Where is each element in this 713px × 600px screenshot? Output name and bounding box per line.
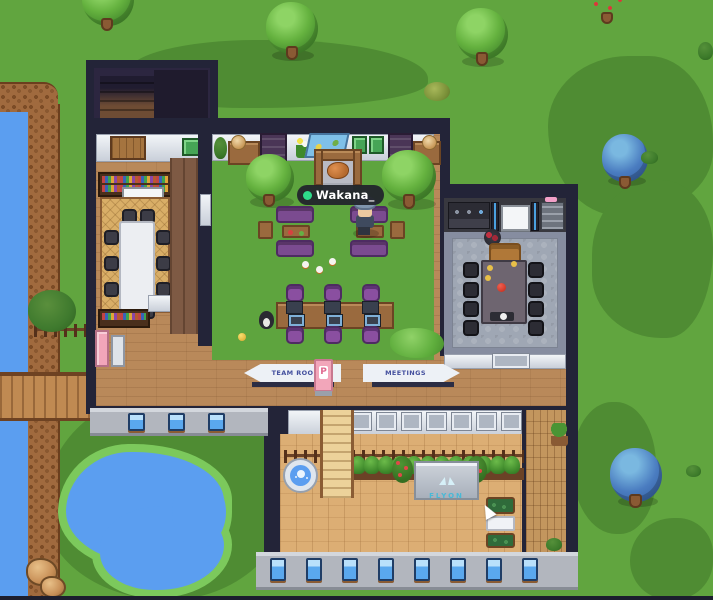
chair-black — [528, 262, 544, 278]
pond — [172, 476, 226, 548]
game-viewport[interactable]: TEAM ROOMS MEETINGS P FLYON — [0, 0, 713, 600]
sofa — [276, 240, 314, 257]
tree-trunk — [629, 494, 642, 508]
window — [414, 558, 430, 581]
brand-billboard: FLYON — [414, 461, 479, 500]
chicken — [302, 261, 309, 268]
chair — [104, 230, 119, 245]
speaker-tower — [531, 202, 539, 231]
office-chair — [324, 326, 342, 344]
chicken — [329, 258, 336, 265]
billboard-wing-icon — [416, 470, 477, 489]
window — [427, 413, 446, 430]
patio-stairs[interactable] — [320, 410, 354, 498]
player-name: Wakana_ — [316, 188, 375, 202]
wall-window — [200, 194, 211, 226]
fountain — [283, 458, 318, 493]
chair-black — [463, 282, 479, 298]
tree-trunk — [403, 194, 415, 209]
sign-meetings[interactable]: MEETINGS — [363, 364, 460, 382]
window — [477, 413, 496, 430]
window — [486, 558, 502, 581]
window — [208, 413, 225, 431]
whiteboard[interactable] — [501, 205, 530, 231]
bush — [686, 465, 701, 477]
monitor — [324, 301, 341, 314]
tree-trunk — [286, 46, 298, 60]
monitor — [286, 301, 303, 314]
vending-machine-silver[interactable] — [111, 335, 125, 367]
viewport-edge — [0, 596, 713, 600]
dark-grass-patch — [592, 180, 713, 338]
chair-black — [528, 320, 544, 336]
potted-plant — [214, 137, 227, 159]
gold-item — [487, 265, 493, 271]
status-dot-icon — [303, 191, 312, 200]
bush — [390, 328, 444, 358]
sofa — [276, 206, 314, 223]
chair-black — [528, 282, 544, 298]
window — [128, 413, 145, 431]
window — [378, 558, 394, 581]
chair-black — [463, 301, 479, 317]
tree-trunk — [601, 12, 613, 24]
bush — [641, 151, 658, 164]
chair — [156, 256, 171, 271]
fountain-spray — [297, 470, 305, 478]
chair — [156, 230, 171, 245]
side-bench — [258, 221, 273, 239]
garden-bench — [486, 533, 515, 548]
gold-item — [511, 261, 517, 267]
monitor — [362, 301, 379, 314]
avatar-leg — [364, 227, 370, 235]
office-chair — [286, 284, 304, 302]
office-chair — [286, 326, 304, 344]
window — [502, 413, 521, 430]
window — [352, 413, 371, 430]
pink-portal-poster[interactable]: P — [314, 359, 333, 392]
reception-desk-side — [314, 149, 323, 186]
divider-wall — [198, 118, 212, 346]
tree-trunk — [263, 194, 275, 207]
gold-item — [238, 333, 246, 341]
dark-grass-patch — [630, 518, 713, 600]
window — [306, 558, 322, 581]
vending-machine-pink[interactable] — [95, 330, 109, 367]
bush — [546, 538, 562, 551]
door[interactable] — [110, 136, 146, 160]
river — [0, 106, 30, 600]
chicken — [316, 266, 323, 273]
cobble-path — [28, 104, 60, 600]
window — [493, 354, 529, 368]
chair — [104, 256, 119, 271]
window — [377, 413, 396, 430]
rocks — [40, 576, 66, 598]
lamp — [231, 135, 246, 150]
reception-desk-side — [353, 149, 362, 186]
sofa — [350, 240, 388, 257]
window — [270, 558, 286, 581]
window — [402, 413, 421, 430]
window — [452, 413, 471, 430]
tree-trunk — [101, 18, 113, 31]
palm-plant — [551, 423, 568, 446]
billboard-brand: FLYON — [416, 492, 477, 500]
interior-wall — [170, 158, 198, 334]
tree-trunk — [476, 52, 488, 66]
chair — [104, 282, 119, 297]
tree-dark — [28, 290, 76, 332]
chair-black — [463, 320, 479, 336]
speakerphone-button — [500, 313, 507, 320]
side-bench — [390, 221, 405, 239]
window — [342, 558, 358, 581]
notice-board — [369, 136, 384, 154]
office-chair — [362, 284, 380, 302]
bookshelf — [98, 309, 150, 328]
player-nametag: Wakana_ — [297, 185, 384, 205]
window — [522, 558, 538, 581]
sign-meetings-label: MEETINGS — [363, 369, 460, 377]
gold-item — [485, 275, 491, 281]
bush — [698, 42, 713, 60]
flower-bush — [392, 456, 413, 483]
portal-letter: P — [319, 366, 328, 379]
chair-black — [463, 262, 479, 278]
storage-rack — [541, 202, 564, 230]
coffee-table — [282, 225, 310, 238]
tree-trunk — [619, 176, 631, 189]
bush-olive — [424, 82, 450, 101]
window — [450, 558, 466, 581]
led-strip — [545, 197, 557, 202]
office-chair — [362, 326, 380, 344]
poster-base — [315, 391, 332, 396]
chair-black — [528, 301, 544, 317]
apple — [497, 283, 506, 292]
av-equipment — [448, 202, 490, 229]
lamp — [422, 135, 437, 150]
penguin-pet — [259, 311, 274, 329]
sign-base — [372, 382, 454, 387]
patio-table — [486, 516, 515, 531]
office-chair — [324, 284, 342, 302]
fox-pet — [327, 162, 349, 179]
window — [168, 413, 185, 431]
speaker-tower — [491, 202, 499, 231]
